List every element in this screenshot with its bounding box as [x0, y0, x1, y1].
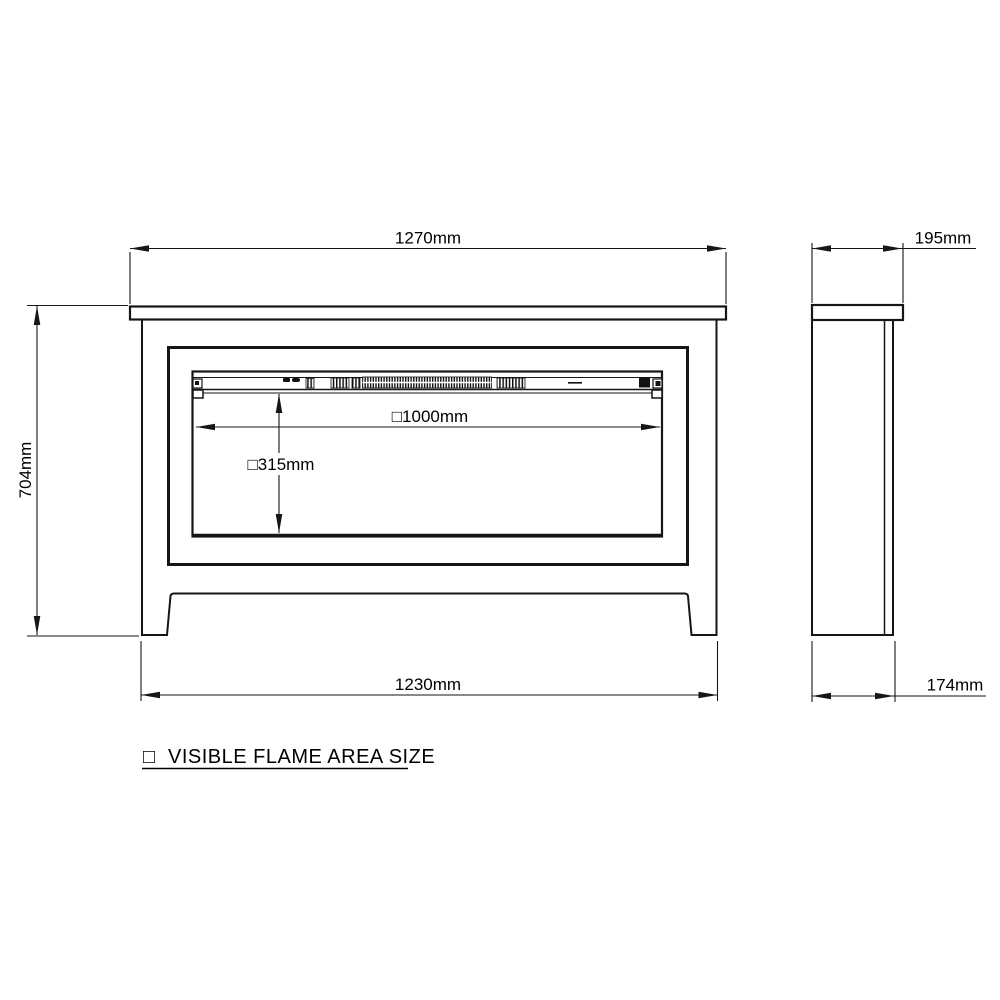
dim-label-flame-width: □1000mm: [392, 407, 468, 426]
side-view: 195mm 174mm: [812, 229, 986, 703]
strip-feet: [193, 390, 662, 398]
drawing-canvas: 1270mm 704mm 1230mm □1000mm: [0, 0, 1000, 1000]
front-mantel-top: [130, 307, 726, 320]
side-body: [812, 320, 893, 635]
dim-label-side-top-depth: 195mm: [915, 229, 972, 248]
dim-label-front-height: 704mm: [16, 442, 35, 499]
front-view: 1270mm 704mm 1230mm □1000mm: [16, 229, 726, 702]
dim-front-top-width: 1270mm: [130, 229, 726, 305]
legend: □ VISIBLE FLAME AREA SIZE: [142, 746, 435, 769]
technical-drawing: 1270mm 704mm 1230mm □1000mm: [0, 0, 1000, 1000]
dim-label-side-base-depth: 174mm: [927, 676, 984, 695]
legend-flame-area-label: VISIBLE FLAME AREA SIZE: [168, 746, 435, 768]
side-top-board: [812, 305, 903, 320]
dim-label-front-top-width: 1270mm: [395, 229, 461, 248]
front-body: [142, 320, 717, 636]
dim-label-front-base-width: 1230mm: [395, 675, 461, 694]
legend-flame-area-symbol: □: [143, 746, 156, 768]
dim-label-flame-height: □315mm: [248, 455, 315, 474]
dim-side-top-depth: 195mm: [812, 229, 976, 304]
dim-flame-height: □315mm: [242, 394, 320, 533]
dim-side-base-depth: 174mm: [812, 641, 986, 702]
dim-front-base-width: 1230mm: [141, 641, 718, 701]
dim-flame-width: □1000mm: [196, 407, 660, 430]
dim-front-height: 704mm: [16, 306, 139, 637]
insert-heater-strip: [193, 377, 662, 398]
